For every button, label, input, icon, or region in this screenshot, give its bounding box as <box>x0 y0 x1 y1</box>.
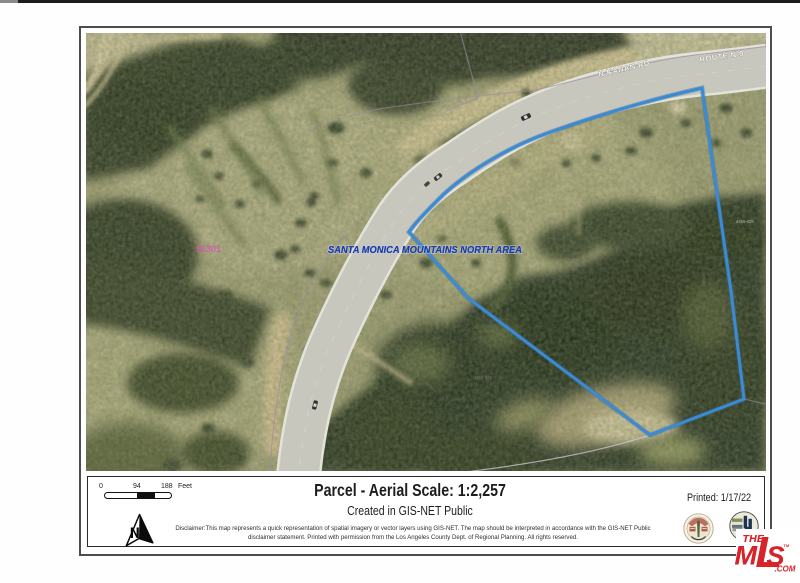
svg-text:4450-021: 4450-021 <box>474 375 492 380</box>
svg-text:91301: 91301 <box>196 244 221 254</box>
svg-text:M: M <box>735 541 758 571</box>
svg-text:SANTA MONICA MOUNTAINS NORTH A: SANTA MONICA MOUNTAINS NORTH AREA <box>328 244 522 256</box>
svg-text:0061023: 0061023 <box>562 254 579 259</box>
svg-text:TM: TM <box>784 543 790 548</box>
svg-text:4455-028: 4455-028 <box>736 219 754 224</box>
svg-text:.COM: .COM <box>775 565 796 574</box>
